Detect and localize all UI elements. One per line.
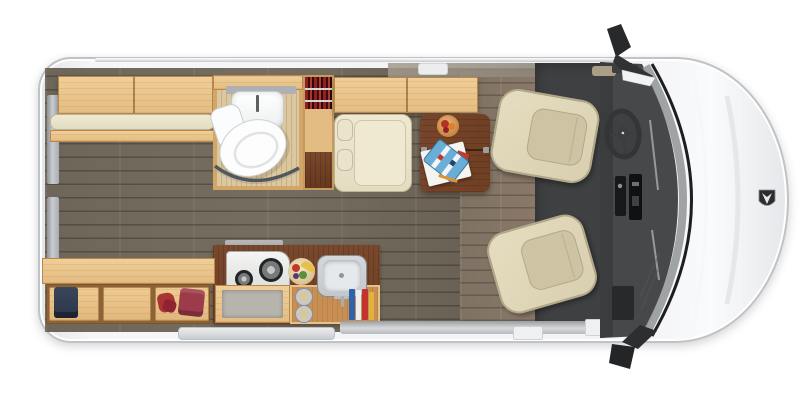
mirror-head-icon — [609, 344, 635, 369]
rear-sofa-cushion — [50, 114, 215, 130]
console-panel — [615, 176, 626, 216]
dashboard-edge — [600, 62, 613, 338]
wardrobe-shelf — [305, 152, 332, 188]
toilet-and-curtain-graphic — [205, 96, 311, 200]
hanging-clothes — [305, 77, 332, 109]
console-screen — [632, 182, 639, 186]
sink-drain-icon — [339, 273, 344, 278]
passenger-mirror-graphic — [600, 318, 664, 378]
galley-faucet-icon — [341, 296, 344, 307]
lower-console — [612, 286, 634, 320]
condiment-bottle-yellow — [369, 292, 374, 320]
headrest-pillow-1 — [337, 119, 353, 141]
rear-sofa-ledge — [50, 130, 215, 142]
cabinet-door-seam — [406, 78, 408, 112]
console-buttons — [632, 196, 639, 206]
hood-crease — [695, 82, 706, 318]
wall-top-strip — [388, 63, 535, 77]
driver-mirror-graphic — [595, 20, 665, 86]
mirror-arm-icon — [622, 325, 657, 349]
mirror-head-icon — [607, 24, 631, 57]
fruit-plum — [443, 127, 449, 133]
rear-overhead-cabinet — [58, 76, 213, 114]
dinette-bench-seat — [354, 120, 406, 186]
oven-door — [222, 290, 283, 318]
console-knob — [618, 184, 622, 188]
fruit-lime — [299, 271, 307, 279]
condiment-bottle-white — [356, 290, 361, 320]
dinette-overhead-cabinet — [334, 77, 478, 113]
duffel-bag-icon — [54, 287, 78, 318]
canister-icon — [296, 306, 312, 322]
van-floor-plan — [0, 0, 800, 400]
fruit-grape — [293, 273, 299, 279]
hood-badge-icon — [759, 190, 775, 206]
hood-crease — [727, 96, 738, 304]
condiment-bottle-red — [362, 289, 368, 320]
storage-door-2 — [103, 287, 151, 321]
canister-icon — [296, 289, 312, 305]
hanger-rod-1 — [305, 88, 332, 90]
hanger-rod-2 — [305, 100, 332, 102]
cab-front-graphic — [520, 40, 800, 360]
folded-blanket-icon — [178, 288, 206, 317]
fruit-orange — [448, 123, 455, 130]
condiment-bottle-blue — [349, 289, 355, 320]
steering-wheel — [605, 109, 642, 158]
stove-burner-large — [259, 258, 283, 282]
cabinet-door-seam — [133, 77, 135, 113]
fruit-bowl-icon — [437, 115, 459, 137]
headrest-pillow-2 — [337, 149, 353, 171]
running-board — [178, 327, 335, 340]
fruit-apple — [292, 264, 300, 272]
storage-counter — [42, 258, 215, 284]
roof-vent — [418, 63, 448, 75]
table-hinge — [483, 147, 489, 153]
